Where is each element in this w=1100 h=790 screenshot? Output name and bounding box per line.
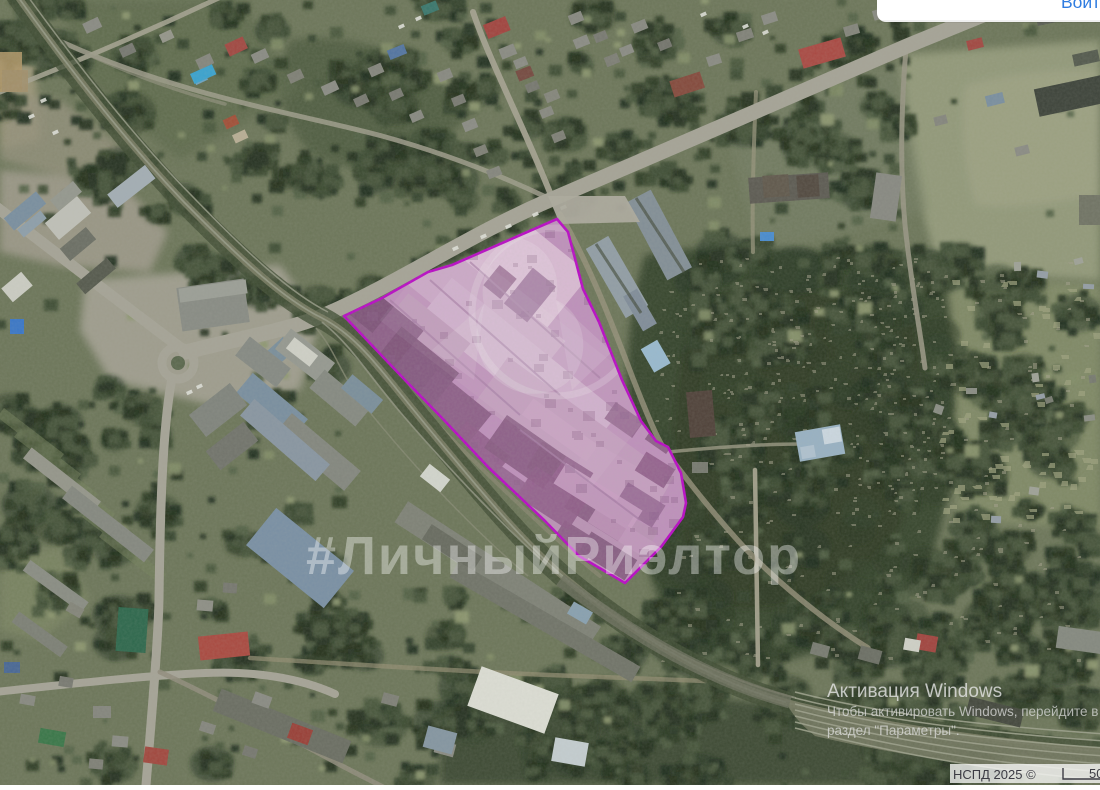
svg-text:Чтобы активировать Windows, пе: Чтобы активировать Windows, перейдите в xyxy=(827,704,1098,719)
svg-text:Активация Windows: Активация Windows xyxy=(827,681,1002,702)
svg-text:раздел "Параметры".: раздел "Параметры". xyxy=(827,723,960,738)
svg-text:Войти: Войти xyxy=(1061,0,1100,12)
svg-text:50: 50 xyxy=(1089,766,1100,781)
svg-text:НСПД 2025 ©: НСПД 2025 © xyxy=(953,767,1036,782)
svg-text:#ЛичныйРиэлтор: #ЛичныйРиэлтор xyxy=(306,526,802,586)
